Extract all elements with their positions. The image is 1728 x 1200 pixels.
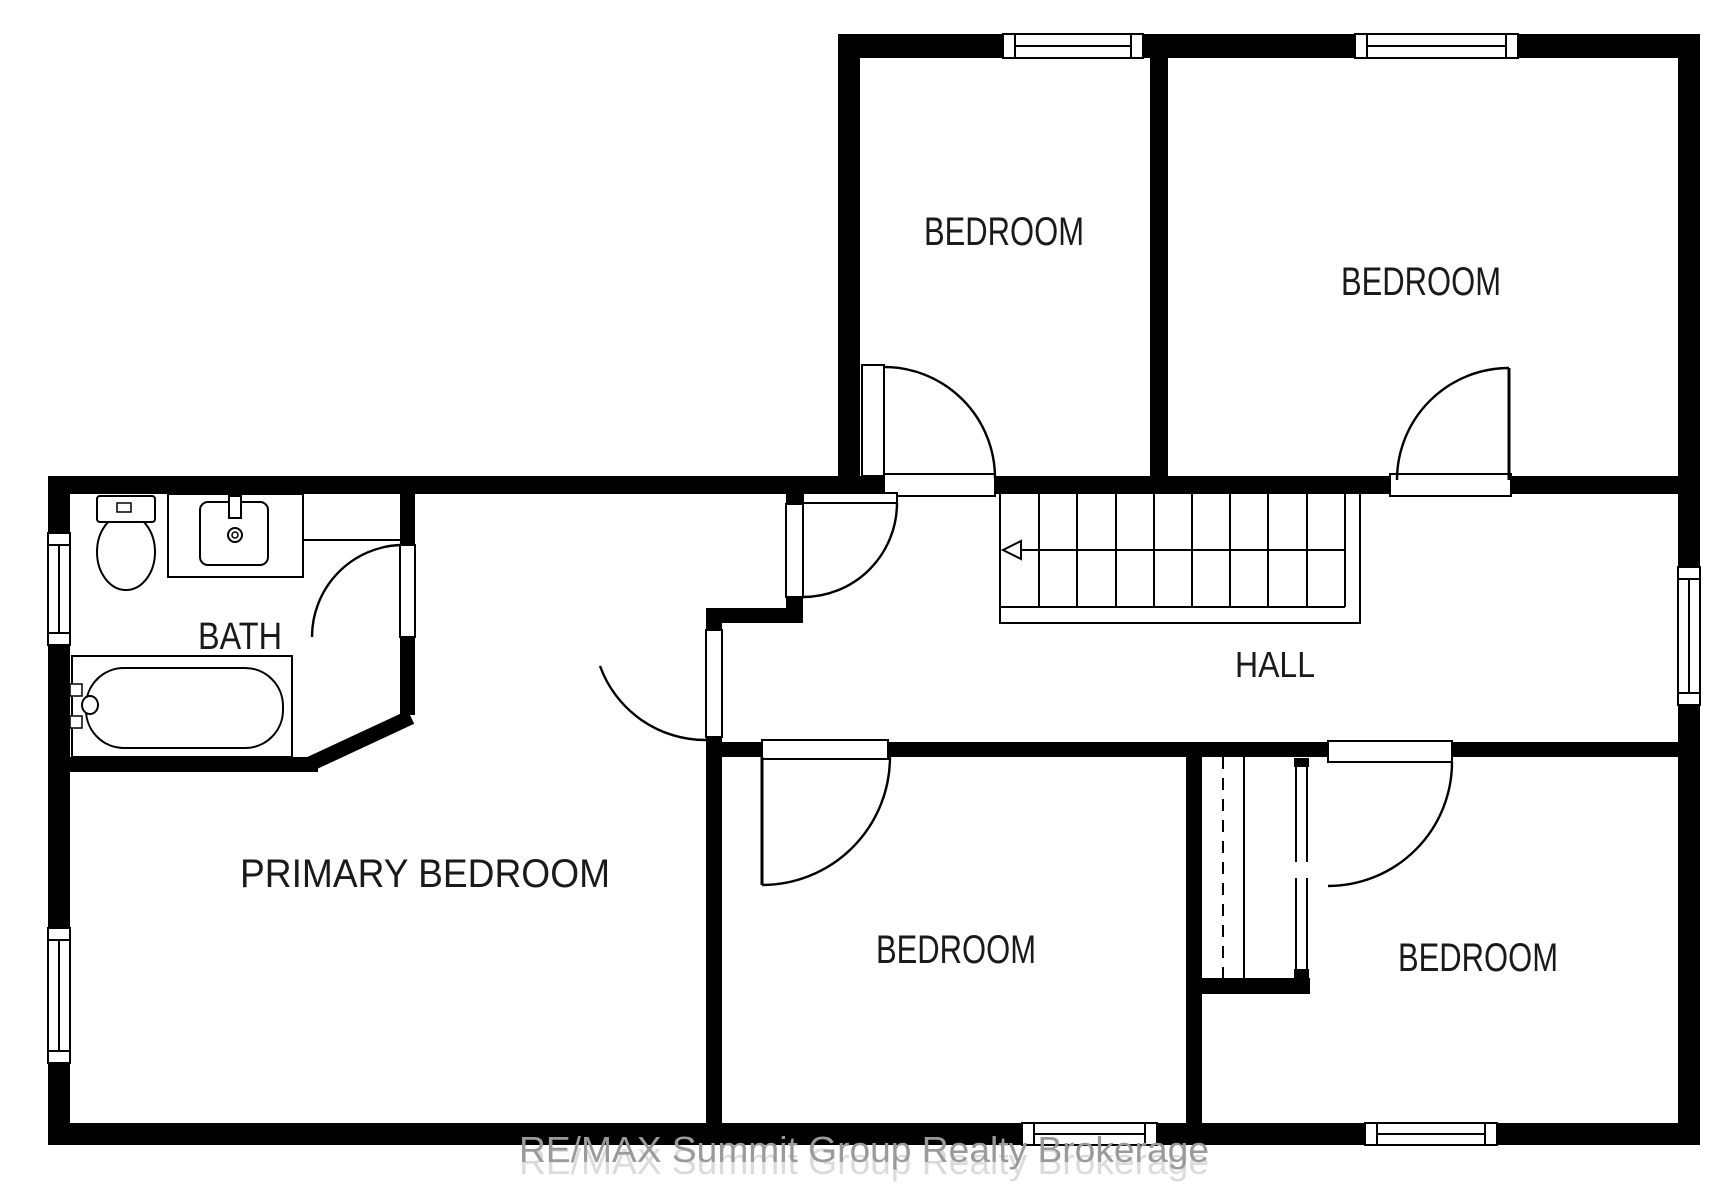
wall-segment [706,623,722,630]
closet-jamb [1294,758,1309,767]
toilet [97,496,155,590]
wall-segment [1150,58,1168,476]
window-bath-left [48,533,70,645]
wall-segment [838,34,860,494]
door-leaf [400,545,415,637]
door-bath [312,545,415,637]
wall-segment [1511,476,1678,494]
door-arc [762,757,890,885]
wall-segment [706,608,803,623]
wall-segment [786,494,803,504]
window-right-bedroom-bottom [1365,1123,1497,1145]
door-arc [884,367,995,478]
watermark: RE/MAX Summit Group Realty Brokerage RE/… [519,1129,1209,1182]
wall-segment [838,34,1700,58]
door-leaf [803,493,897,503]
window-top-left-bedroom [1003,34,1143,58]
doors [312,365,1511,886]
door-opening [706,630,722,737]
door-hall-corridor [786,493,897,597]
staircase [1000,492,1360,623]
door-arc [600,666,706,740]
door-leaf [1328,741,1452,762]
door-threshold [762,740,888,759]
floor-plan-canvas: BEDROOM BEDROOM BEDROOM BEDROOM PRIMARY … [0,0,1728,1200]
tub-faucet-icon [82,696,98,714]
door-arc [312,545,400,637]
door-primary-bedroom [600,630,722,740]
bathtub [70,656,292,757]
door-threshold [884,474,995,496]
wall-segment [1186,742,1202,1145]
room-label-bedroom-top-right: BEDROOM [1341,260,1501,304]
closet-jamb [1294,969,1309,978]
door-middle-bedroom [762,740,890,885]
wall-segment [706,737,722,1145]
door-top-right-bedroom [1390,368,1511,496]
room-label-bedroom-middle: BEDROOM [876,928,1036,972]
wall-segment [48,476,884,494]
door-opening [786,504,803,597]
door-arc [1397,368,1509,480]
watermark-text: RE/MAX Summit Group Realty Brokerage [519,1129,1209,1170]
window-top-right-bedroom [1355,34,1518,58]
closet [1223,757,1309,978]
door-top-left-bedroom [862,365,995,496]
window-primary-left [48,928,70,1063]
door-arc [803,503,897,597]
wall-segment [995,476,1390,494]
wall-segment [48,757,318,772]
door-arc [1328,762,1452,886]
door-leaf [862,365,884,476]
floor-plan: BEDROOM BEDROOM BEDROOM BEDROOM PRIMARY … [0,0,1728,1200]
wall-segment [1452,742,1678,757]
wall-segment [1202,978,1310,994]
door-threshold [1390,474,1511,496]
room-label-bedroom-top-left: BEDROOM [924,210,1084,254]
room-label-bedroom-bottom-right: BEDROOM [1398,936,1558,980]
sink [168,494,303,577]
wall-segment [888,742,1328,757]
window-hall-right [1678,567,1700,705]
stair-direction-arrow-icon [1003,541,1021,559]
room-label-hall: HALL [1235,644,1315,685]
wall-segment [400,637,415,715]
room-label-primary-bedroom: PRIMARY BEDROOM [240,852,610,896]
wall-segment [706,742,762,757]
room-label-bath: BATH [198,616,282,658]
wall-chamfer [310,717,411,764]
wall-segment [400,494,415,545]
door-right-bedroom [1328,741,1452,886]
